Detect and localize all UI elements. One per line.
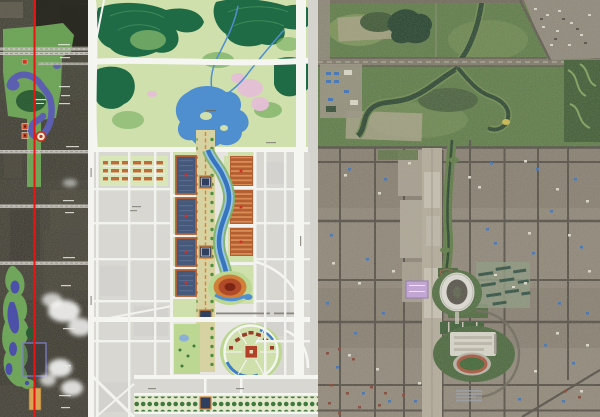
panel-satellite (318, 0, 600, 417)
cross-road (88, 317, 318, 322)
satellite-grain (318, 0, 600, 417)
map-triptych (0, 0, 600, 417)
stadium-ring-marker (36, 132, 45, 141)
west-edge-road (88, 0, 94, 417)
forest-hill-overlay (16, 90, 46, 112)
cultural-building-blocks-west (176, 156, 196, 296)
red-axis-line (34, 0, 36, 417)
panel-master-plan (88, 0, 318, 417)
panel-axis-overview (0, 0, 88, 417)
site-dot-marker (23, 60, 28, 65)
west-lawn (174, 324, 200, 374)
